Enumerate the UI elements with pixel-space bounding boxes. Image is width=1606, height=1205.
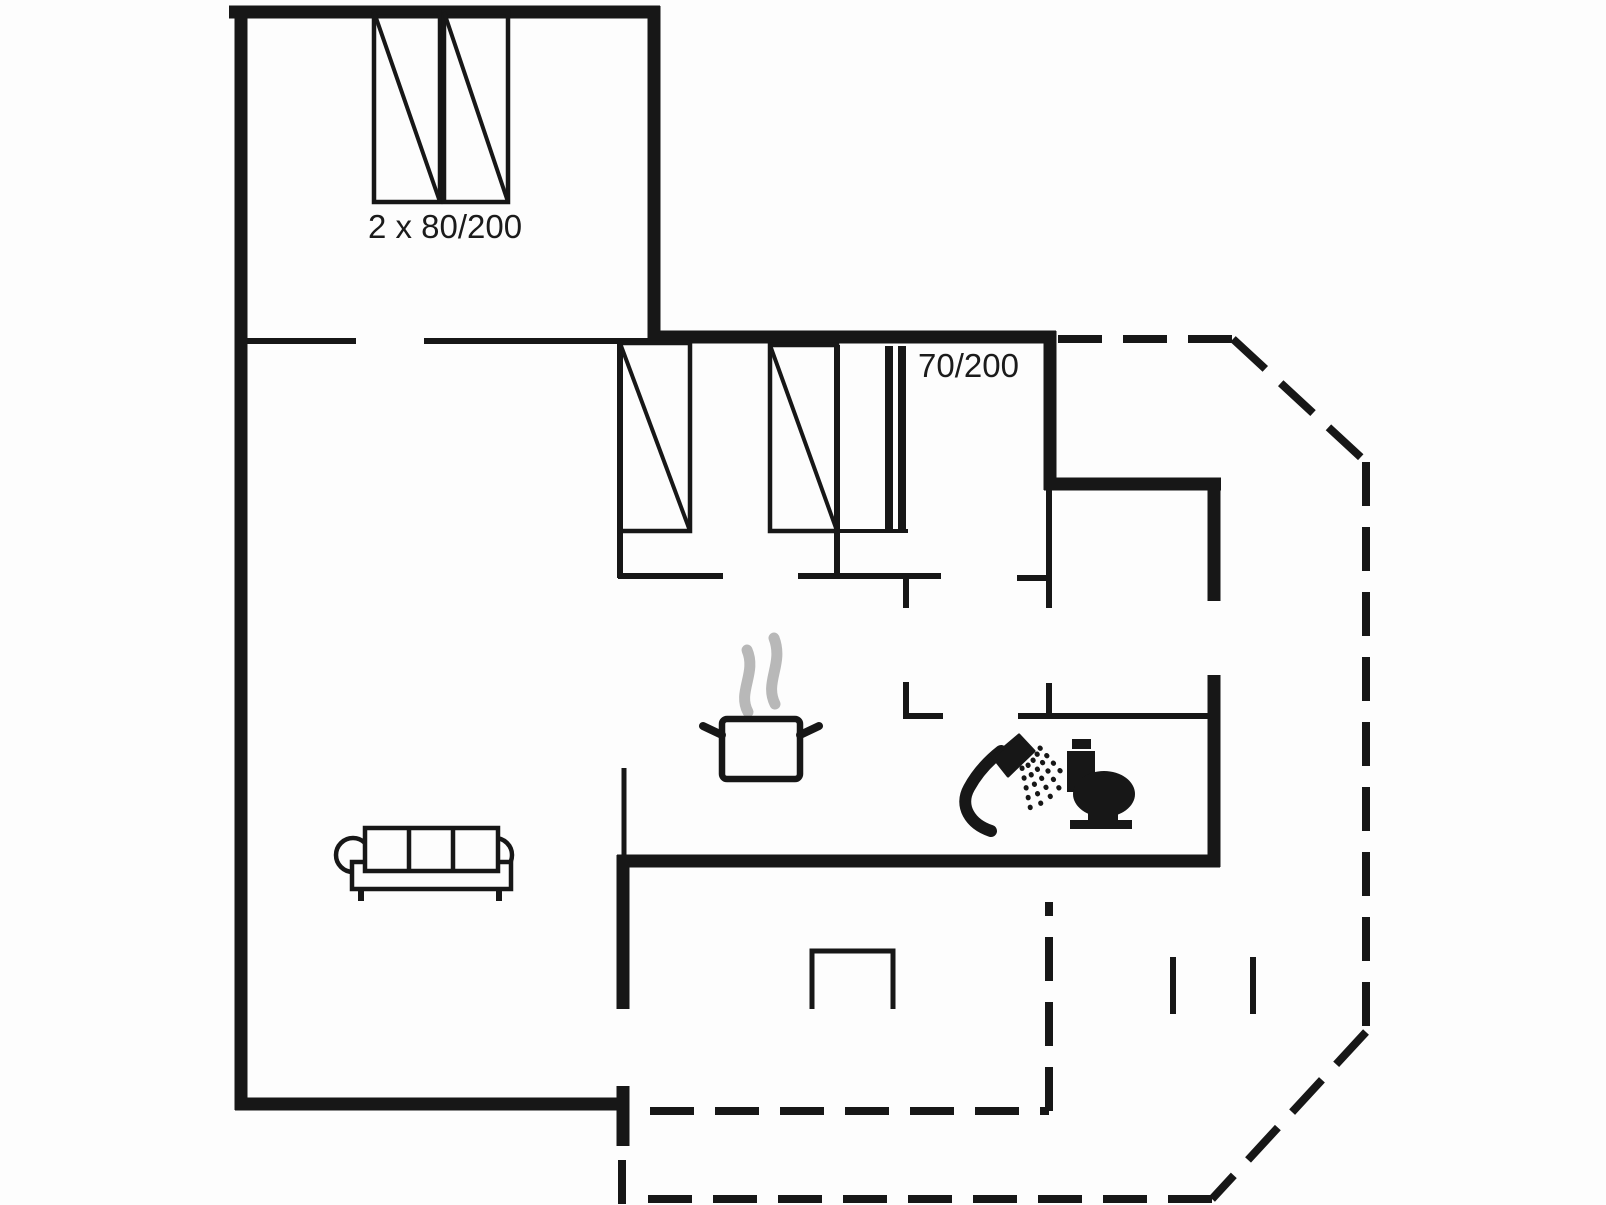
steam-icon (745, 638, 777, 712)
shower-icon (965, 735, 1063, 831)
floor-plan-svg (0, 0, 1606, 1205)
floor-plan: 2 x 80/200 70/200 (0, 0, 1606, 1205)
single-bed-size-label: 70/200 (918, 347, 1028, 385)
terrace-outline-diag-bottom (1212, 1032, 1366, 1199)
single-bed-2-icon (770, 345, 837, 531)
table-icon (812, 951, 893, 1009)
double-bed-size-label: 2 x 80/200 (355, 208, 535, 246)
double-bed-left-icon (374, 12, 440, 202)
single-bed-1-icon (620, 343, 690, 531)
sofa-icon (336, 828, 512, 901)
cooking-pot-icon (703, 719, 819, 779)
double-bed-right-icon (444, 12, 508, 202)
toilet-icon (1067, 739, 1135, 829)
terrace-outline-diag-top (1233, 339, 1366, 462)
